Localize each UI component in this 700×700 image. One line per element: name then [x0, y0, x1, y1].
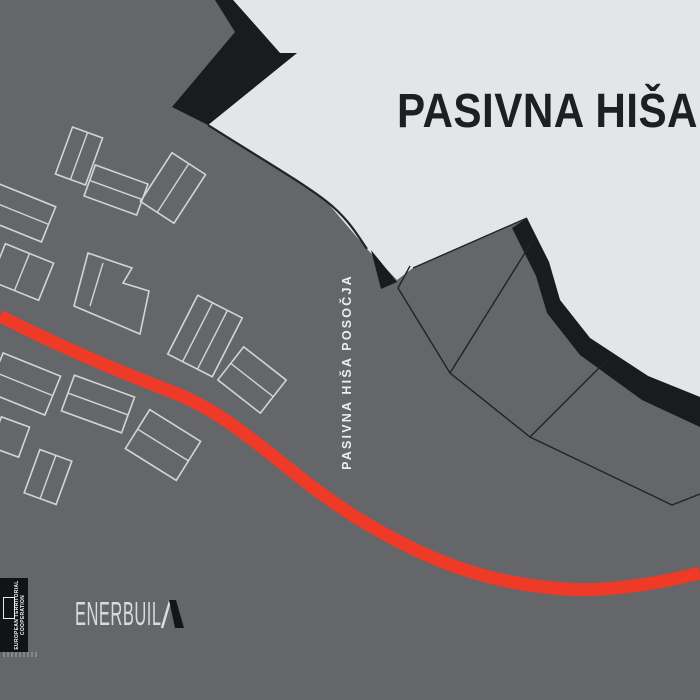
building-outline	[140, 153, 205, 223]
parcel-boundary-line	[450, 240, 533, 373]
building-division-line	[231, 363, 274, 396]
building-division-line	[40, 455, 56, 498]
enerbuild-logo-text: ENERBUIL	[75, 600, 162, 628]
poster: PASIVNA HIŠA PASIVNA HIŠA POSOČJA ENERBU…	[0, 0, 700, 700]
building-footprint	[0, 244, 54, 301]
building-outline	[0, 353, 61, 415]
building-division-line	[197, 310, 227, 369]
d-glyph-black-stroke	[169, 600, 184, 628]
parcel-boundary-line	[530, 360, 607, 437]
building-division-line	[183, 303, 213, 362]
eu-territorial-badge: EUROPEAN TERRITORIAL COOPERATION	[0, 578, 28, 652]
eu-badge-line2: COOPERATION	[20, 595, 26, 635]
fine-print-placeholder	[3, 652, 39, 657]
building-outline	[55, 127, 102, 185]
building-division-line	[90, 263, 103, 306]
building-division-line	[138, 429, 189, 461]
building-footprint	[0, 417, 30, 457]
building-outline	[218, 347, 286, 413]
building-footprint	[74, 253, 149, 334]
building-outline	[84, 165, 148, 215]
enerbuild-d-glyph-icon	[157, 599, 187, 630]
side-strip-label: PASIVNA HIŠA POSOČJA	[340, 272, 356, 472]
building-outline	[125, 410, 200, 481]
building-division-line	[90, 180, 143, 199]
building-outline	[24, 450, 72, 505]
d-glyph-white-stroke	[162, 601, 170, 628]
building-division-line	[68, 393, 128, 415]
building-division-line	[70, 133, 87, 180]
l-shaped-building	[74, 253, 149, 334]
poster-title: PASIVNA HIŠA	[397, 88, 698, 136]
building-outline	[0, 417, 30, 457]
building-outline	[61, 375, 134, 433]
eu-badge-label: EUROPEAN TERRITORIAL COOPERATION	[14, 580, 28, 650]
building-division-line	[0, 372, 53, 395]
building-outline	[0, 182, 56, 242]
building-division-line	[0, 200, 49, 225]
building-footprint	[0, 182, 56, 242]
building-division-line	[15, 253, 30, 290]
building-outline	[0, 244, 54, 301]
building-division-line	[157, 164, 189, 213]
building-footprint	[0, 353, 61, 415]
